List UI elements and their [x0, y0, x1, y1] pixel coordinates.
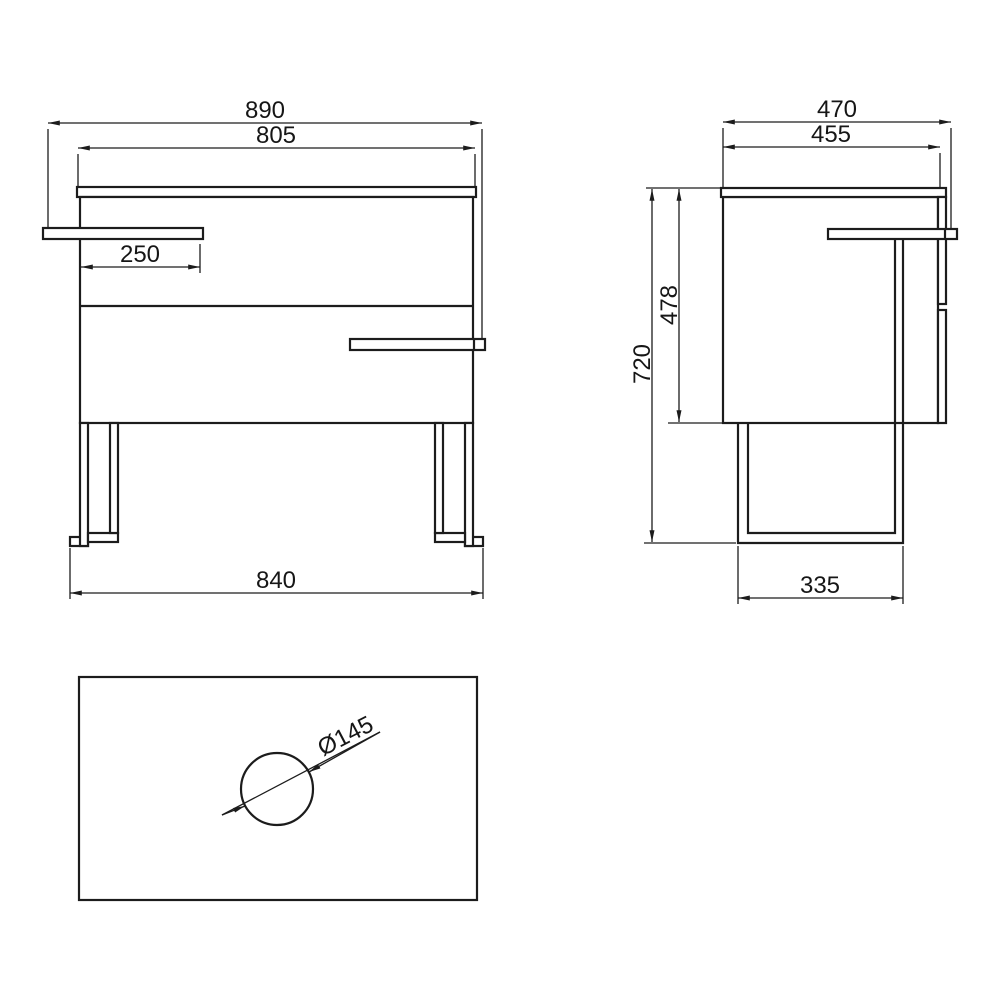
front-right-leg-bottom-bar [435, 533, 465, 542]
dim-feet-span-840: 840 [70, 548, 483, 599]
technical-drawing-page: 890 805 250 840 [0, 0, 1000, 1000]
top-countertop-outline [79, 677, 477, 900]
dim-label-455: 455 [811, 121, 851, 148]
side-upper-drawer-front [938, 197, 946, 304]
front-left-leg-inner-bar [110, 423, 118, 533]
dim-leg-depth-335: 335 [738, 546, 903, 604]
dim-label-478: 478 [656, 285, 683, 325]
front-left-leg-bottom-bar [88, 533, 118, 542]
dim-label-470: 470 [817, 96, 857, 123]
dim-cabinet-width-805: 805 [78, 122, 475, 186]
front-view: 890 805 250 840 [43, 97, 485, 599]
dim-cabinet-depth-455: 455 [723, 121, 940, 187]
front-right-leg-outer-bar [465, 423, 473, 546]
dim-label-720: 720 [629, 344, 656, 384]
front-left-leg [70, 423, 118, 546]
front-left-leg-outer-bar [80, 423, 88, 546]
top-view: Ø145 [79, 677, 477, 900]
dim-label-840: 840 [256, 567, 296, 594]
front-towel-rail [43, 228, 203, 239]
side-countertop [721, 188, 946, 197]
front-drawer-handle [350, 339, 485, 350]
dim-label-335: 335 [800, 572, 840, 599]
front-right-leg-inner-bar [435, 423, 443, 533]
technical-drawing-canvas: 890 805 250 840 [0, 0, 1000, 1000]
dim-cabinet-height-478: 478 [646, 188, 722, 423]
dim-label-805: 805 [256, 122, 296, 149]
side-lower-drawer-front [938, 310, 946, 423]
side-towel-rail [828, 229, 957, 239]
side-view: 470 455 478 720 335 [629, 96, 957, 604]
dim-label-250: 250 [120, 241, 160, 268]
front-right-leg [435, 423, 483, 546]
dim-overall-height-720: 720 [629, 189, 736, 543]
front-countertop [77, 187, 476, 197]
dim-label-890: 890 [245, 97, 285, 124]
